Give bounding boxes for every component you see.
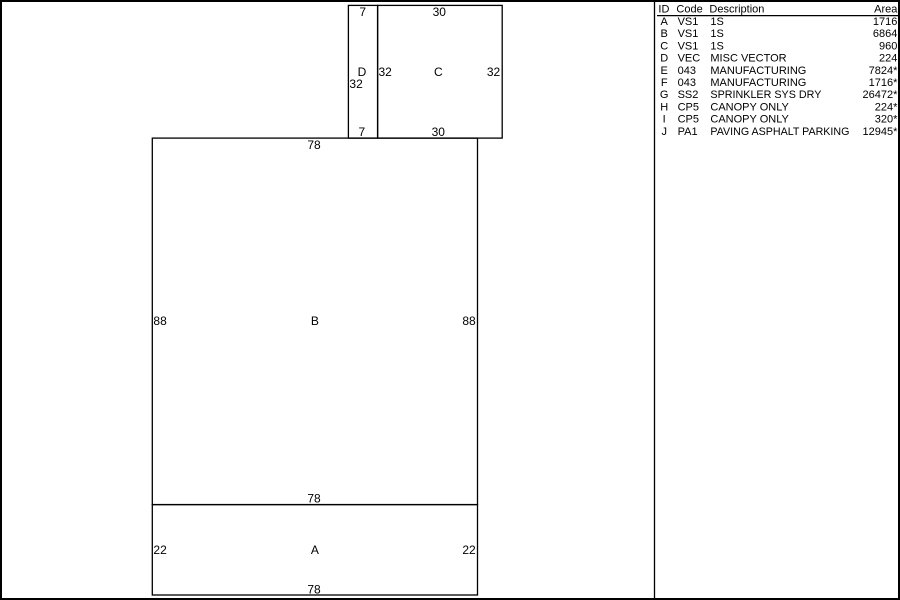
svg-text:22: 22 — [462, 543, 476, 557]
svg-text:7: 7 — [359, 125, 366, 139]
svg-text:CP5: CP5 — [678, 101, 699, 113]
svg-text:7824*: 7824* — [869, 65, 898, 77]
svg-text:78: 78 — [307, 491, 321, 505]
svg-text:960: 960 — [879, 40, 897, 52]
svg-text:PA1: PA1 — [678, 126, 698, 138]
svg-text:MANUFACTURING: MANUFACTURING — [710, 65, 806, 77]
svg-text:1S: 1S — [710, 28, 723, 40]
svg-text:32: 32 — [379, 65, 393, 79]
svg-text:H: H — [660, 101, 668, 113]
svg-text:30: 30 — [432, 125, 446, 139]
svg-text:26472*: 26472* — [863, 89, 899, 101]
svg-text:ID: ID — [658, 4, 669, 16]
svg-text:22: 22 — [153, 543, 167, 557]
svg-text:88: 88 — [462, 314, 476, 328]
svg-text:Description: Description — [709, 4, 764, 16]
svg-text:A: A — [661, 16, 669, 28]
svg-text:I: I — [663, 114, 666, 126]
svg-text:CANOPY ONLY: CANOPY ONLY — [710, 101, 789, 113]
svg-text:88: 88 — [153, 314, 167, 328]
svg-text:SPRINKLER SYS DRY: SPRINKLER SYS DRY — [710, 89, 822, 101]
svg-text:78: 78 — [307, 582, 321, 596]
svg-text:SS2: SS2 — [678, 89, 699, 101]
svg-text:J: J — [661, 126, 667, 138]
svg-text:MANUFACTURING: MANUFACTURING — [710, 77, 806, 89]
svg-text:B: B — [661, 28, 668, 40]
svg-text:VS1: VS1 — [678, 16, 699, 28]
svg-text:6864: 6864 — [873, 28, 897, 40]
svg-text:224*: 224* — [875, 101, 898, 113]
svg-text:VEC: VEC — [678, 53, 701, 65]
svg-text:12945*: 12945* — [863, 126, 899, 138]
svg-text:E: E — [661, 65, 668, 77]
svg-text:32: 32 — [349, 77, 363, 91]
svg-text:043: 043 — [678, 65, 696, 77]
svg-text:G: G — [660, 89, 669, 101]
svg-text:Area: Area — [874, 4, 898, 16]
svg-text:32: 32 — [487, 65, 501, 79]
svg-text:7: 7 — [359, 5, 366, 19]
svg-text:VS1: VS1 — [678, 40, 699, 52]
svg-text:A: A — [311, 543, 319, 557]
svg-text:1S: 1S — [710, 40, 723, 52]
svg-text:D: D — [660, 53, 668, 65]
svg-text:PAVING ASPHALT PARKING: PAVING ASPHALT PARKING — [710, 126, 849, 138]
svg-text:78: 78 — [307, 138, 321, 152]
svg-text:320*: 320* — [875, 114, 898, 126]
svg-text:224: 224 — [879, 53, 897, 65]
svg-text:C: C — [660, 40, 668, 52]
svg-text:C: C — [434, 65, 443, 79]
svg-text:VS1: VS1 — [678, 28, 699, 40]
svg-text:043: 043 — [678, 77, 696, 89]
svg-text:Code: Code — [676, 4, 702, 16]
svg-text:CANOPY ONLY: CANOPY ONLY — [710, 114, 789, 126]
svg-text:1S: 1S — [710, 16, 723, 28]
svg-text:1716: 1716 — [873, 16, 897, 28]
svg-text:30: 30 — [433, 5, 447, 19]
svg-text:F: F — [661, 77, 668, 89]
svg-text:1716*: 1716* — [869, 77, 898, 89]
svg-text:MISC VECTOR: MISC VECTOR — [710, 53, 786, 65]
svg-text:B: B — [311, 314, 319, 328]
svg-text:CP5: CP5 — [678, 114, 699, 126]
